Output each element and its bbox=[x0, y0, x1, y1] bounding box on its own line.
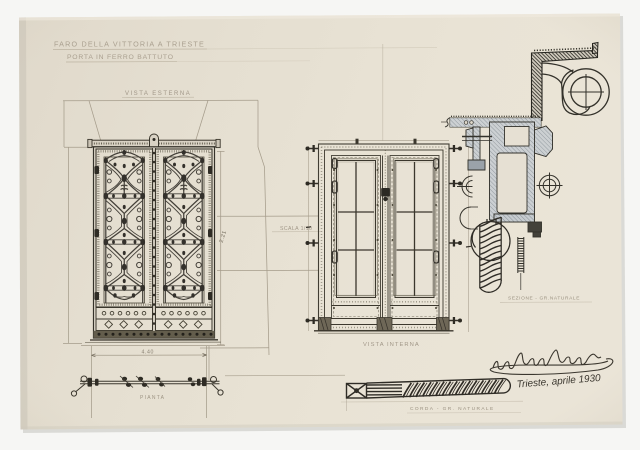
svg-text:PIANTA: PIANTA bbox=[140, 395, 165, 401]
svg-text:PORTA IN FERRO BATTUTO: PORTA IN FERRO BATTUTO bbox=[67, 54, 174, 61]
svg-text:FARO DELLA VITTORIA A TRIESTE: FARO DELLA VITTORIA A TRIESTE bbox=[54, 40, 205, 49]
svg-text:SEZIONE - GR.NATURALE: SEZIONE - GR.NATURALE bbox=[508, 296, 580, 302]
svg-text:4.40: 4.40 bbox=[142, 350, 155, 356]
svg-text:VISTA ESTERNA: VISTA ESTERNA bbox=[125, 91, 191, 97]
svg-text:CORDA - GR. NATURALE: CORDA - GR. NATURALE bbox=[410, 406, 494, 412]
svg-text:VISTA INTERNA: VISTA INTERNA bbox=[363, 342, 420, 348]
